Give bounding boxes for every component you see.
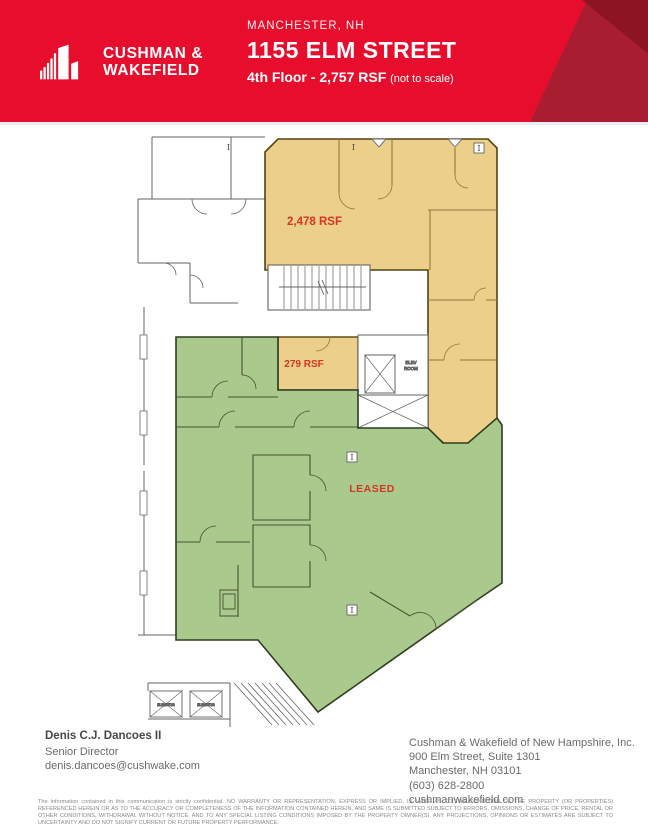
broker-email: denis.dancoes@cushwake.com <box>45 759 200 773</box>
floor-plan: 2,478 RSF 279 RSF ELEV ROOM <box>134 135 516 735</box>
elevator-label: ELEVATOR <box>157 703 175 707</box>
header-banner: CUSHMAN & WAKEFIELD MANCHESTER, NH 1155 … <box>0 0 648 122</box>
elevator-label: ELEVATOR <box>197 703 215 707</box>
title-block: MANCHESTER, NH 1155 ELM STREET 4th Floor… <box>247 20 456 85</box>
brand-line2: WAKEFIELD <box>103 62 203 79</box>
available-area-279: 279 RSF <box>278 337 358 390</box>
cushman-wakefield-logo: CUSHMAN & WAKEFIELD <box>40 40 203 84</box>
brand-line1: CUSHMAN & <box>103 45 203 62</box>
column-marker: I <box>347 452 357 462</box>
column-marker-glyph: I <box>477 144 480 153</box>
elev-room-label-1: ELEV <box>405 360 416 365</box>
company-name: Cushman & Wakefield of New Hampshire, In… <box>409 736 635 750</box>
scale-note: (not to scale) <box>390 73 454 85</box>
column-marker-glyph: I <box>350 606 353 615</box>
header-divider <box>0 122 648 125</box>
elev-room-label-2: ROOM <box>404 366 418 371</box>
company-info: Cushman & Wakefield of New Hampshire, In… <box>409 736 635 807</box>
core-outline <box>358 335 428 430</box>
company-address-1: 900 Elm Street, Suite 1301 <box>409 750 635 764</box>
door-arcs <box>164 199 246 288</box>
stairwell <box>268 265 370 310</box>
brand-wordmark: CUSHMAN & WAKEFIELD <box>103 45 203 79</box>
building-elevators: ELEVATOR ELEVATOR <box>148 683 314 727</box>
broker-name: Denis C.J. Dancoes II <box>45 729 200 743</box>
column-marker: I <box>347 605 357 615</box>
column-marker-glyph: I <box>352 143 355 152</box>
building-logo-icon <box>40 40 92 84</box>
column-marker: I <box>352 143 355 152</box>
column-marker-glyph: I <box>227 143 230 152</box>
flyer-page: CUSHMAN & WAKEFIELD MANCHESTER, NH 1155 … <box>0 0 648 837</box>
company-address-2: Manchester, NH 03101 <box>409 764 635 778</box>
column-marker-glyph: I <box>350 453 353 462</box>
available-279-label: 279 RSF <box>284 359 323 370</box>
location-label: MANCHESTER, NH <box>247 20 456 32</box>
elevator-shaft-2: ELEVATOR <box>190 691 222 717</box>
broker-contact: Denis C.J. Dancoes II Senior Director de… <box>45 729 200 773</box>
property-address: 1155 ELM STREET <box>247 37 456 64</box>
leased-label: LEASED <box>349 483 395 495</box>
available-2478-label: 2,478 RSF <box>287 216 342 228</box>
column-marker: I <box>474 143 484 153</box>
elevator-core: ELEV ROOM <box>358 335 428 430</box>
floor-rsf-text: 4th Floor - 2,757 RSF <box>247 69 386 85</box>
column-marker: I <box>227 143 230 152</box>
company-phone: (603) 628-2800 <box>409 779 635 793</box>
elevator-shaft-1: ELEVATOR <box>150 691 182 717</box>
broker-title: Senior Director <box>45 745 200 759</box>
legal-disclaimer: The information contained in this commun… <box>38 799 613 827</box>
floor-info: 4th Floor - 2,757 RSF (not to scale) <box>247 69 456 85</box>
